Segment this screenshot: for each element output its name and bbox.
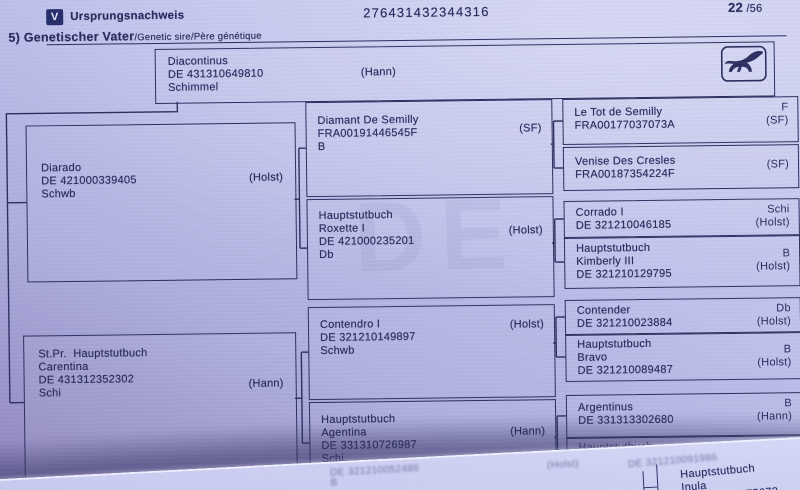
studbook-title: St.Pr. Hauptstutbuch <box>38 347 147 361</box>
pedigree-box-diarado: Diarado DE 421000339405 Schwb (Holst) <box>26 122 298 282</box>
horse-color: Schi <box>39 387 62 400</box>
horse-name: Diarado <box>41 162 81 175</box>
breed-association: (Hann) <box>361 66 396 79</box>
horse-name: Contendro I <box>320 318 380 332</box>
color-and-association: Schi(Holst) <box>755 203 789 228</box>
pedigree-box-diacontinus: Diacontinus DE 431310649810 Schimmel (Ha… <box>155 41 776 104</box>
color-and-association: B(Holst) <box>756 247 790 272</box>
breed-association: (Holst) <box>757 315 791 328</box>
photographed-pedigree-certificate: V Ursprungsnachweis 276431432344316 22 /… <box>0 0 800 490</box>
horse-color: B <box>756 247 790 260</box>
sheet-connector-line <box>656 465 661 490</box>
color-and-association: Db(Holst) <box>757 302 791 327</box>
pedigree-box-venise-des-cresles: Venise Des Cresles FRA00187354224F (SF) <box>563 144 800 191</box>
horse-name: Diacontinus <box>168 55 228 69</box>
sheet-pedigree-entry: Hauptstutbuch Inula DE 321210175672 <box>680 461 779 490</box>
horse-color: Schi <box>755 203 789 216</box>
horse-color: Schimmel <box>168 81 218 95</box>
pedigree-box-roxette: Hauptstutbuch Roxette I DE 421000235201 … <box>306 196 554 300</box>
page-indicator: 22 /56 <box>728 1 763 16</box>
horse-name: Carentina <box>38 361 88 375</box>
breed-association: (SF) <box>766 114 789 127</box>
verband-logo: V <box>46 9 63 25</box>
horse-registration: DE 321210023884 <box>577 316 736 331</box>
horse-registration: FRA00177037073A <box>574 118 733 133</box>
horse-color: Schwb <box>320 345 354 358</box>
breed-association: (Holst) <box>756 260 790 273</box>
breed-association: (Holst) <box>509 224 543 237</box>
horse-registration: DE 421000339405 <box>41 174 137 188</box>
document-title: Ursprungsnachweis <box>70 10 184 24</box>
breed-association: (Hann) <box>248 377 283 390</box>
showthrough-registration: DE 321210052486 <box>330 463 420 479</box>
horse-registration: FRA00191446545F <box>318 127 418 141</box>
breed-association: (Holst) <box>756 216 790 229</box>
horse-registration: DE 321210089487 <box>577 363 736 378</box>
page-number: 22 <box>728 0 743 15</box>
horse-color: B <box>318 141 326 154</box>
sheet-connector-line <box>643 487 657 489</box>
breed-association: (Holst) <box>249 171 283 184</box>
horse-brand-icon <box>721 46 767 83</box>
color-and-association: (SF) <box>767 158 790 171</box>
pedigree-box-bravo: Hauptstutbuch Bravo DE 321210089487 B(Ho… <box>565 331 800 382</box>
pedigree-box-le-tot-de-semilly: Le Tot de Semilly FRA00177037073A F(SF) <box>562 96 799 145</box>
horse-registration: DE 321210046185 <box>576 218 735 233</box>
horse-color: Db <box>319 249 334 262</box>
breed-association: (Holst) <box>510 318 544 331</box>
horse-registration: DE 421000235201 <box>319 235 415 249</box>
color-and-association: B(Holst) <box>757 343 791 368</box>
horse-name: Roxette I <box>319 222 365 236</box>
horse-registration: DE 431310649810 <box>168 68 264 82</box>
pedigree-box-contendro: Contendro I DE 321210149897 Schwb (Holst… <box>308 304 556 400</box>
pedigree-box-kimberly: Hauptstutbuch Kimberly III DE 3212101297… <box>564 234 800 289</box>
horse-registration: DE 321210149897 <box>320 331 416 345</box>
breed-association: (Holst) <box>757 356 791 369</box>
color-and-association: F(SF) <box>766 101 789 126</box>
horse-color: Schwb <box>41 188 75 201</box>
showthrough-association: (Holst) <box>547 459 580 472</box>
breed-association: (SF) <box>767 158 790 171</box>
certificate-page: V Ursprungsnachweis 276431432344316 22 /… <box>0 0 800 490</box>
logo-letter: V <box>51 11 58 23</box>
horse-registration: DE 321210129795 <box>576 267 735 282</box>
section-heading-main: 5) Genetischer Vater <box>8 29 134 45</box>
document-number: 276431432344316 <box>363 5 490 20</box>
breed-association: (SF) <box>519 122 542 135</box>
showthrough-color: B <box>330 477 338 488</box>
horse-color: Db <box>757 302 791 315</box>
studbook-title: Hauptstutbuch <box>319 209 393 223</box>
horse-name: Diamant De Semilly <box>317 114 418 128</box>
horse-color: B <box>757 343 791 356</box>
horse-color: F <box>766 101 789 114</box>
pedigree-box-diamant-de-semilly: Diamant De Semilly FRA00191446545F B (SF… <box>305 99 553 197</box>
horse-registration: FRA00187354224F <box>575 167 734 182</box>
page-total: /56 <box>746 3 762 15</box>
horse-registration: DE 431312352302 <box>39 373 135 387</box>
pedigree-box-contender: Contender DE 321210023884 Db(Holst) <box>565 297 800 336</box>
pedigree-box-corrado: Corrado I DE 321210046185 Schi(Holst) <box>563 198 799 239</box>
